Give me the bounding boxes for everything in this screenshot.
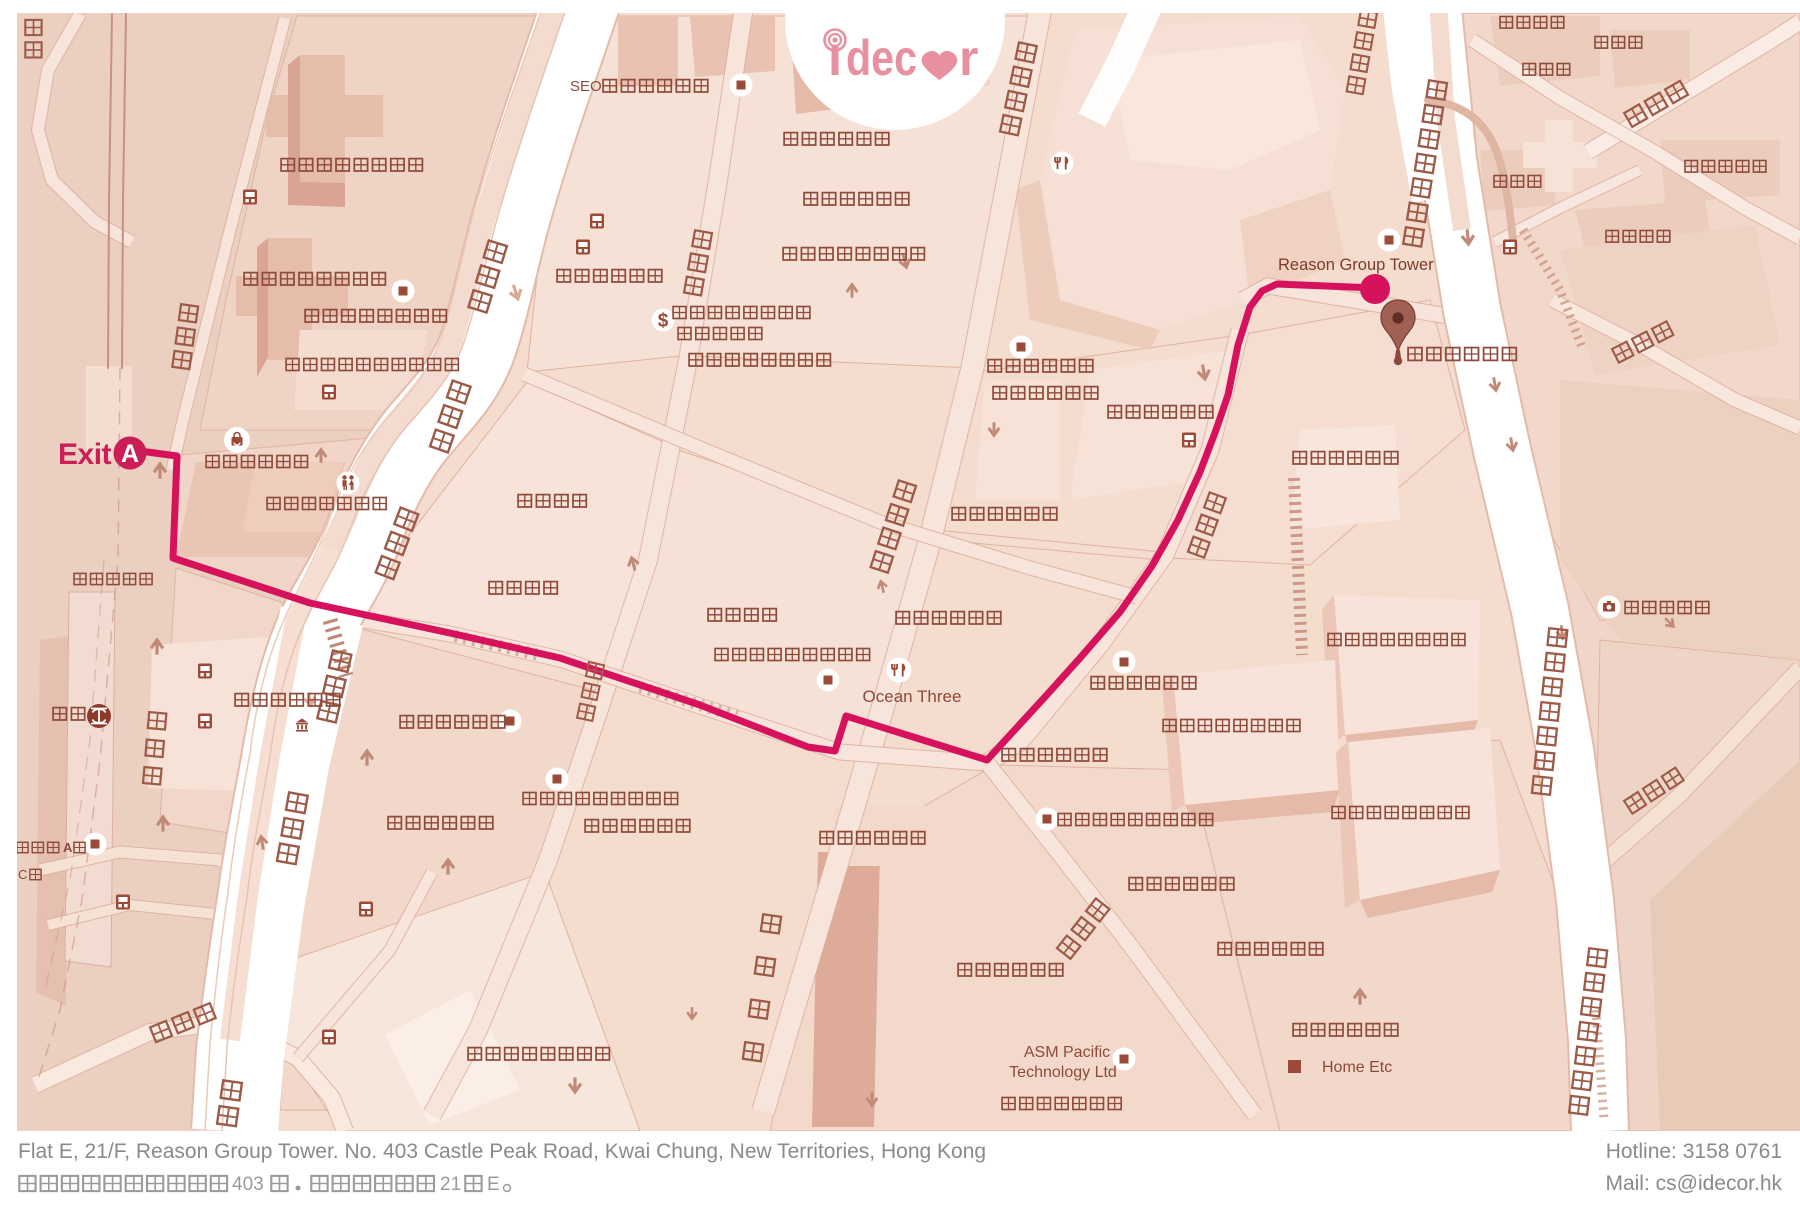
svg-text:Exit: Exit	[58, 438, 112, 471]
svg-text:C: C	[18, 867, 27, 882]
svg-text:$: $	[658, 311, 669, 332]
svg-text:A: A	[121, 440, 139, 468]
svg-text:ASM Pacific: ASM Pacific	[1024, 1044, 1110, 1061]
svg-text:Technology Ltd: Technology Ltd	[1009, 1064, 1117, 1081]
svg-text:Flat E, 21/F, Reason Group Tow: Flat E, 21/F, Reason Group Tower. No. 40…	[18, 1140, 986, 1163]
svg-text:dec: dec	[846, 30, 917, 86]
svg-text:403: 403	[232, 1174, 264, 1195]
svg-text:E: E	[487, 1174, 500, 1195]
svg-text:Mail: cs@idecor.hk: Mail: cs@idecor.hk	[1605, 1172, 1782, 1195]
svg-text:SEO: SEO	[570, 78, 602, 95]
svg-text:Reason Group Tower: Reason Group Tower	[1278, 256, 1434, 274]
svg-text:Home Etc: Home Etc	[1322, 1059, 1392, 1076]
svg-text:21: 21	[440, 1174, 461, 1195]
svg-text:r: r	[959, 30, 978, 86]
svg-text:A: A	[63, 840, 73, 855]
svg-text:Ocean Three: Ocean Three	[863, 687, 962, 706]
svg-text:Hotline: 3158 0761: Hotline: 3158 0761	[1606, 1140, 1782, 1163]
